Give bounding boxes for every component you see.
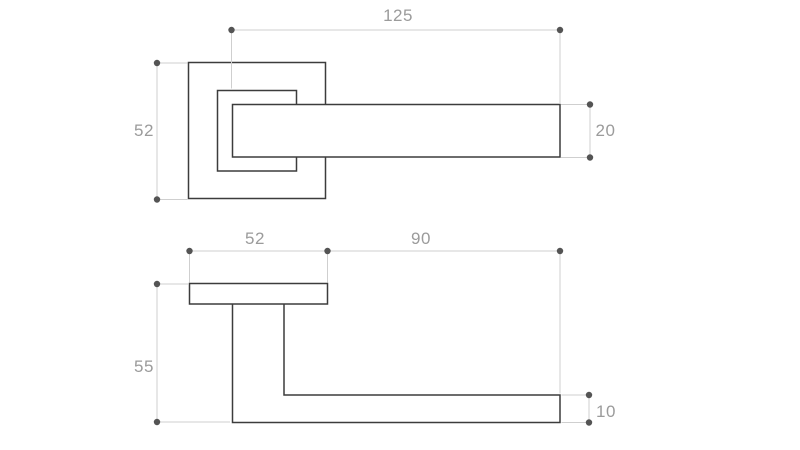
dimension-line bbox=[561, 105, 590, 158]
dim-side-rose-and-projection: 52 90 bbox=[186, 229, 563, 394]
lever-bar bbox=[233, 105, 561, 158]
lever-profile bbox=[233, 304, 561, 423]
dimension-line bbox=[562, 395, 590, 423]
dim-front-rose-size: 52 bbox=[134, 60, 187, 203]
dim-label-side-lever-thickness: 10 bbox=[596, 402, 616, 421]
dimension-dot bbox=[186, 248, 192, 254]
dimension-line bbox=[157, 63, 188, 200]
dimension-dot bbox=[557, 27, 563, 33]
dimension-dot bbox=[586, 419, 592, 425]
dim-label-front-rose-size: 52 bbox=[134, 121, 154, 140]
dimension-dot bbox=[154, 196, 160, 202]
front-view: 125 52 20 bbox=[134, 6, 615, 203]
dim-label-front-lever-length: 125 bbox=[383, 6, 413, 25]
dimension-dot bbox=[324, 248, 330, 254]
technical-drawing-canvas: 125 52 20 bbox=[0, 0, 800, 450]
dim-label-side-depth: 55 bbox=[134, 357, 154, 376]
dimension-dot bbox=[154, 419, 160, 425]
dim-side-lever-thickness: 10 bbox=[562, 392, 616, 426]
dim-label-front-lever-height: 20 bbox=[596, 121, 616, 140]
dimension-dot bbox=[228, 27, 234, 33]
door-handle-drawing-svg: 125 52 20 bbox=[0, 0, 800, 450]
dimension-dot bbox=[587, 101, 593, 107]
dim-label-side-rose-size: 52 bbox=[245, 229, 265, 248]
rose-plate-side bbox=[190, 284, 328, 305]
dimension-line bbox=[190, 251, 561, 394]
dimension-dot bbox=[557, 248, 563, 254]
dimension-dot bbox=[154, 60, 160, 66]
dimension-dot bbox=[587, 154, 593, 160]
side-view: 52 90 55 10 bbox=[134, 229, 616, 426]
dim-label-side-projection: 90 bbox=[411, 229, 431, 248]
dimension-dot bbox=[586, 392, 592, 398]
dimension-dot bbox=[154, 281, 160, 287]
dim-front-lever-height: 20 bbox=[561, 101, 615, 160]
